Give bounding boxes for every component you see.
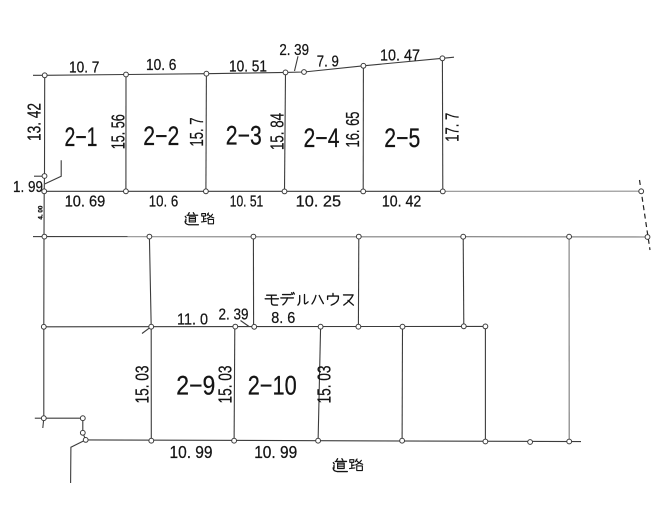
svg-text:16. 65: 16. 65 bbox=[343, 112, 363, 148]
svg-text:2−2: 2−2 bbox=[143, 121, 179, 151]
svg-text:10. 6: 10. 6 bbox=[149, 194, 178, 211]
svg-text:15. 84: 15. 84 bbox=[268, 113, 288, 150]
svg-text:15. 03: 15. 03 bbox=[216, 366, 236, 404]
svg-text:10. 51: 10. 51 bbox=[229, 58, 267, 75]
svg-text:1. 99: 1. 99 bbox=[13, 179, 43, 196]
svg-text:2−1: 2−1 bbox=[65, 122, 98, 152]
svg-text:10. 51: 10. 51 bbox=[230, 194, 264, 211]
svg-text:2−10: 2−10 bbox=[248, 371, 297, 401]
svg-text:2−3: 2−3 bbox=[226, 121, 262, 151]
svg-text:15. 03: 15. 03 bbox=[315, 366, 335, 404]
svg-text:17. 7: 17. 7 bbox=[443, 113, 463, 142]
svg-text:15. 03: 15. 03 bbox=[133, 366, 153, 404]
svg-text:10. 6: 10. 6 bbox=[146, 57, 177, 74]
svg-text:2−4: 2−4 bbox=[304, 123, 340, 153]
svg-text:10. 47: 10. 47 bbox=[380, 48, 420, 65]
svg-text:10. 69: 10. 69 bbox=[65, 194, 106, 211]
svg-text:13. 42: 13. 42 bbox=[25, 103, 45, 141]
svg-text:10. 25: 10. 25 bbox=[296, 194, 342, 211]
svg-text:2−9: 2−9 bbox=[176, 371, 215, 401]
svg-text:7. 9: 7. 9 bbox=[317, 53, 339, 70]
svg-text:2. 39: 2. 39 bbox=[279, 42, 309, 59]
svg-text:15. 56: 15. 56 bbox=[109, 114, 129, 149]
svg-text:10. 99: 10. 99 bbox=[254, 442, 297, 462]
svg-text:10. 99: 10. 99 bbox=[170, 442, 213, 462]
svg-text:10. 42: 10. 42 bbox=[382, 194, 421, 211]
svg-text:2−5: 2−5 bbox=[384, 123, 420, 153]
svg-text:10. 7: 10. 7 bbox=[69, 60, 99, 77]
svg-text:15. 7: 15. 7 bbox=[187, 118, 207, 147]
svg-text:8. 6: 8. 6 bbox=[271, 310, 295, 327]
svg-text:4. 00: 4. 00 bbox=[39, 205, 45, 220]
svg-text:2. 39: 2. 39 bbox=[219, 307, 249, 324]
svg-text:11. 0: 11. 0 bbox=[177, 312, 208, 329]
